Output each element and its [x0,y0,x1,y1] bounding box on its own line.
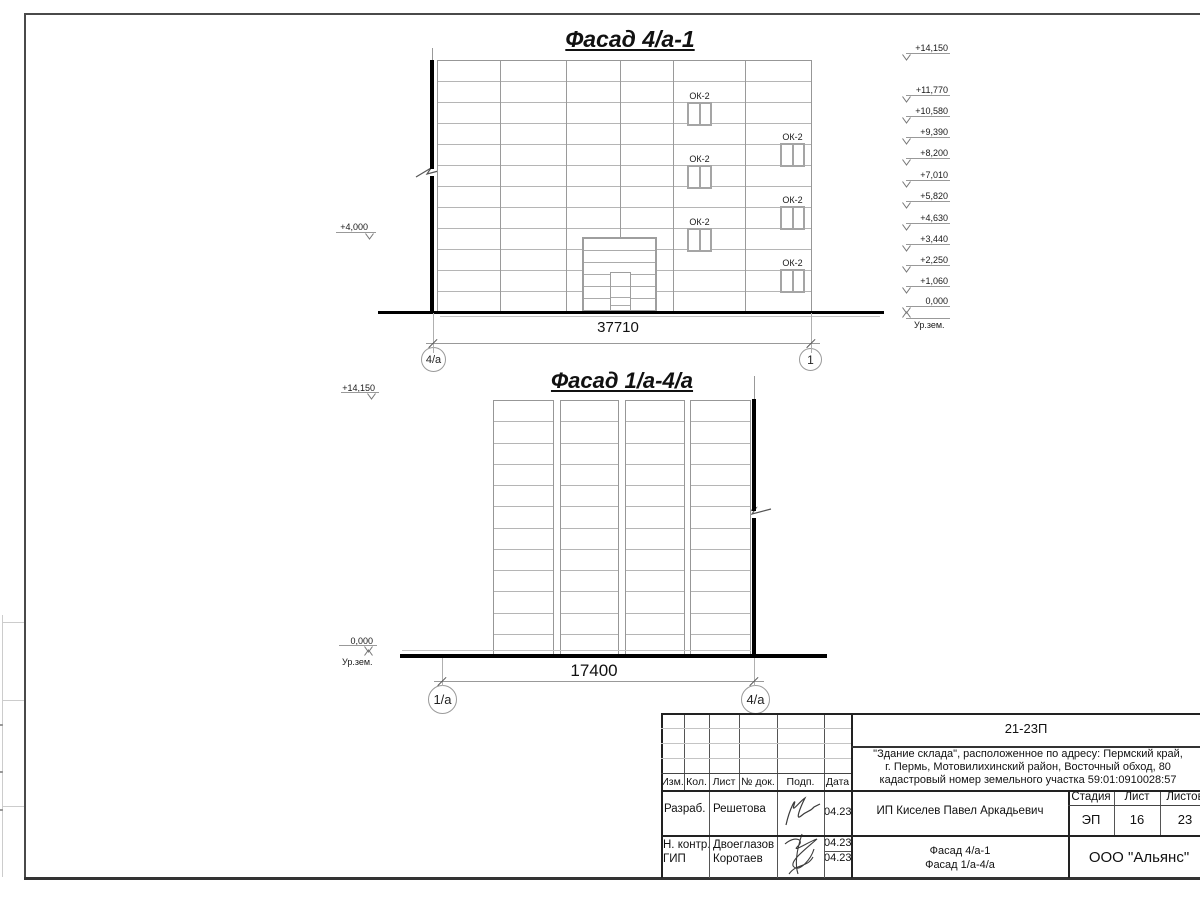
elevation-label: +5,820 [910,191,948,201]
elevation-leader [906,158,950,159]
elevation-arrow-icon [902,266,911,273]
facade1-grid-line [673,61,674,311]
titleblock-line [1068,790,1070,878]
facade2-siding-line [691,464,750,465]
elevation-leader [906,286,950,287]
gate-slat-line [584,250,655,251]
margin-stamp-line [2,622,24,623]
facade1-ground-line [378,311,884,315]
sheet-title-line2: Фасад 1/а-4/а [852,859,1068,871]
company-name: ООО "Альянс" [1068,849,1200,866]
titleblock-line [777,713,778,878]
facade2-siding-line [691,506,750,507]
facade2-siding-line [626,613,684,614]
signer-date-3: 04.23 [824,852,851,864]
titleblock-line [851,713,853,878]
sheet-label: Лист [1114,791,1160,803]
elevation-arrow-icon [902,224,911,231]
facade2-ground-line [400,654,827,658]
signer-name-3: Коротаев [713,853,763,865]
facade2-siding-line [561,570,618,571]
elevation-leader [906,116,950,117]
titleblock-line [661,713,663,878]
titleblock-description-line1: "Здание склада", расположенное по адресу… [856,748,1200,760]
facade2-siding-line [691,634,750,635]
margin-stamp-line [2,615,3,877]
signer-role-2: Н. контр. [663,839,710,851]
facade1-ground-sub-line [440,316,880,317]
sheets-value: 23 [1160,812,1200,827]
facade1-grid-line [566,61,567,311]
facade1-corner-line [430,60,434,169]
signature-gip [776,832,824,878]
elevation-leader [906,53,950,54]
facade1-siding-line [438,207,811,208]
facade1-extension-line [432,48,433,60]
titleblock-line [661,758,851,759]
window-mullion [699,167,701,187]
ground-level-label: Ур.зем. [342,657,382,667]
elevation-label: +11,770 [910,85,948,95]
sheet-title-line1: Фасад 4/а-1 [852,845,1068,857]
gate-slat-line [584,262,655,263]
facade2-axis-left: 1/а [428,685,457,714]
window-mullion [699,230,701,250]
elevation-arrow-icon [365,233,374,240]
facade2-siding-line [626,570,684,571]
facade2-siding-line [494,549,553,550]
window-mullion [792,271,794,291]
facade2-siding-line [691,591,750,592]
titleblock-line [824,713,825,878]
window-mullion [792,208,794,228]
titleblock-col-list: Лист [709,776,739,788]
facade2-siding-line [561,549,618,550]
window-label: ОК-2 [777,195,808,205]
facade2-siding-line [561,485,618,486]
extension-line [433,313,434,353]
elevation-arrow-icon [902,311,911,318]
elevation-label: +7,010 [910,170,948,180]
facade2-title: Фасад 1/а-4/а [442,368,802,394]
signer-role-3: ГИП [663,853,686,865]
margin-stamp-mark [0,809,3,811]
facade1-siding-line [438,228,811,229]
titleblock-line [851,746,1200,748]
sheet-value: 16 [1114,812,1160,827]
facade2-siding-line [626,506,684,507]
frame-left [24,13,26,879]
facade2-siding-line [691,570,750,571]
window-label: ОК-2 [777,258,808,268]
facade2-siding-line [561,613,618,614]
elevation-arrow-icon [902,54,911,61]
dimension-line [434,681,764,682]
facade1-grid-line [745,61,746,311]
titleblock-line [661,790,1200,792]
facade2-siding-line [494,443,553,444]
facade1-siding-line [438,123,811,124]
facade1-grid-line [500,61,501,311]
facade2-siding-line [494,506,553,507]
elevation-leader [906,265,950,266]
titleblock-line [739,713,740,790]
elevation-arrow-icon [364,649,373,656]
elevation-arrow-icon [902,117,911,124]
facade2-siding-line [691,613,750,614]
signer-name-1: Решетова [713,803,766,815]
elevation-leader [906,223,950,224]
facade1-corner-line [430,176,434,313]
facade2-siding-line [626,634,684,635]
titleblock-col-kol: Кол. [684,776,709,788]
elevation-arrow-icon [367,393,376,400]
extension-line [811,313,812,353]
stage-value: ЭП [1068,812,1114,827]
titleblock-col-data: Дата [824,776,851,788]
facade1-dimension: 37710 [560,319,676,336]
elevation-arrow-icon [902,245,911,252]
facade2-siding-line [561,506,618,507]
elevation-arrow-icon [902,287,911,294]
facade2-siding-line [626,485,684,486]
titleblock-description-line3: кадастровый номер земельного участка 59:… [856,774,1200,786]
titleblock-col-podp: Подп. [777,776,824,788]
facade2-siding-line [494,634,553,635]
dimension-line [426,343,820,344]
titleblock-description-line2: г. Пермь, Мотовилихинский район, Восточн… [856,761,1200,773]
facade1-siding-line [438,144,811,145]
facade1-siding-line [438,102,811,103]
facade2-siding-line [494,421,553,422]
titleblock-client: ИП Киселев Павел Аркадьевич [852,805,1068,817]
facade2-siding-line [561,443,618,444]
titleblock-doc-number: 21-23П [852,721,1200,736]
elevation-label: +4,000 [330,222,368,232]
elevation-leader [906,244,950,245]
elevation-label: +14,150 [910,43,948,53]
elevation-label: +2,250 [910,255,948,265]
elevation-label: +4,630 [910,213,948,223]
signature-razrab [779,791,823,833]
elevation-leader [906,180,950,181]
facade2-siding-line [691,549,750,550]
titleblock-col-doc: № док. [739,776,777,788]
elevation-label: +3,440 [910,234,948,244]
facade2-siding-line [494,464,553,465]
signer-role-1: Разраб. [664,803,705,815]
facade2-siding-line [494,528,553,529]
elevation-arrow-icon [902,138,911,145]
facade2-siding-line [561,528,618,529]
titleblock-line [1068,805,1200,806]
titleblock-line [684,713,685,790]
elevation-leader [906,201,950,202]
window-label: ОК-2 [684,91,715,101]
titleblock-line [709,713,710,878]
margin-stamp-mark [0,724,3,726]
facade2-corner-line [752,518,757,656]
facade2-siding-line [626,591,684,592]
facade2-siding-line [691,421,750,422]
facade2-extension-line [754,376,755,399]
window-label: ОК-2 [684,217,715,227]
window-mullion [699,104,701,124]
facade1-siding-line [438,186,811,187]
titleblock-line [661,835,1200,837]
window-label: ОК-2 [777,132,808,142]
facade2-siding-line [626,549,684,550]
titleblock-line [661,773,851,774]
sheets-label: Листов [1160,791,1200,803]
wicket-line [611,286,630,287]
margin-stamp-line [2,806,24,807]
signer-name-2: Двоеглазов [713,839,774,851]
titleblock-line [1160,790,1161,835]
facade2-siding-line [691,485,750,486]
facade2-siding-line [626,528,684,529]
margin-stamp-line [2,700,24,701]
elevation-arrow-icon [902,159,911,166]
titleblock-col-izm: Изм. [661,776,684,788]
window-label: ОК-2 [684,154,715,164]
elevation-label: +8,200 [910,148,948,158]
facade2-siding-line [561,634,618,635]
elevation-leader [906,95,950,96]
drawing-sheet: Фасад 4/а-1 37710 4/а 1 Фасад 1/а-4/а 17… [0,0,1200,900]
margin-stamp-mark [0,771,3,773]
facade2-siding-line [561,421,618,422]
titleblock-line [661,713,1200,715]
wicket-line [611,305,630,306]
titleblock-line [824,851,851,852]
facade2-siding-line [691,443,750,444]
elevation-label: +9,390 [910,127,948,137]
facade1-title: Фасад 4/а-1 [450,26,810,53]
facade2-siding-line [691,528,750,529]
elevation-arrow-icon [902,202,911,209]
elevation-leader [906,137,950,138]
facade2-siding-line [626,464,684,465]
elevation-label: 0,000 [910,296,948,306]
facade2-siding-line [626,443,684,444]
facade1-siding-line [438,81,811,82]
facade2-siding-line [494,570,553,571]
facade2-dimension: 17400 [529,661,659,681]
facade2-siding-line [494,613,553,614]
facade2-siding-line [626,421,684,422]
signer-date-2: 04.23 [824,837,851,849]
elevation-label: +10,580 [910,106,948,116]
elevation-leader [906,306,950,307]
elevation-label: +1,060 [910,276,948,286]
facade2-siding-line [561,464,618,465]
elevation-arrow-icon [902,96,911,103]
facade2-axis-right: 4/а [741,685,770,714]
stage-label: Стадия [1068,791,1114,803]
facade2-siding-line [561,591,618,592]
elevation-arrow-icon [902,181,911,188]
titleblock-line [661,743,851,744]
frame-top [24,13,1200,15]
facade2-siding-line [494,591,553,592]
wicket-line [611,297,630,298]
facade2-corner-line [752,399,757,511]
window-mullion [792,145,794,165]
facade2-siding-line [494,485,553,486]
frame-bottom [24,877,1200,880]
titleblock-line [1114,790,1115,835]
signer-date-1: 04.23 [824,806,851,818]
facade2-plinth-line [402,650,751,651]
titleblock-line [661,728,851,729]
ground-level-label: Ур.зем. [914,320,954,330]
elevation-leader [906,318,950,319]
facade1-siding-line [438,165,811,166]
